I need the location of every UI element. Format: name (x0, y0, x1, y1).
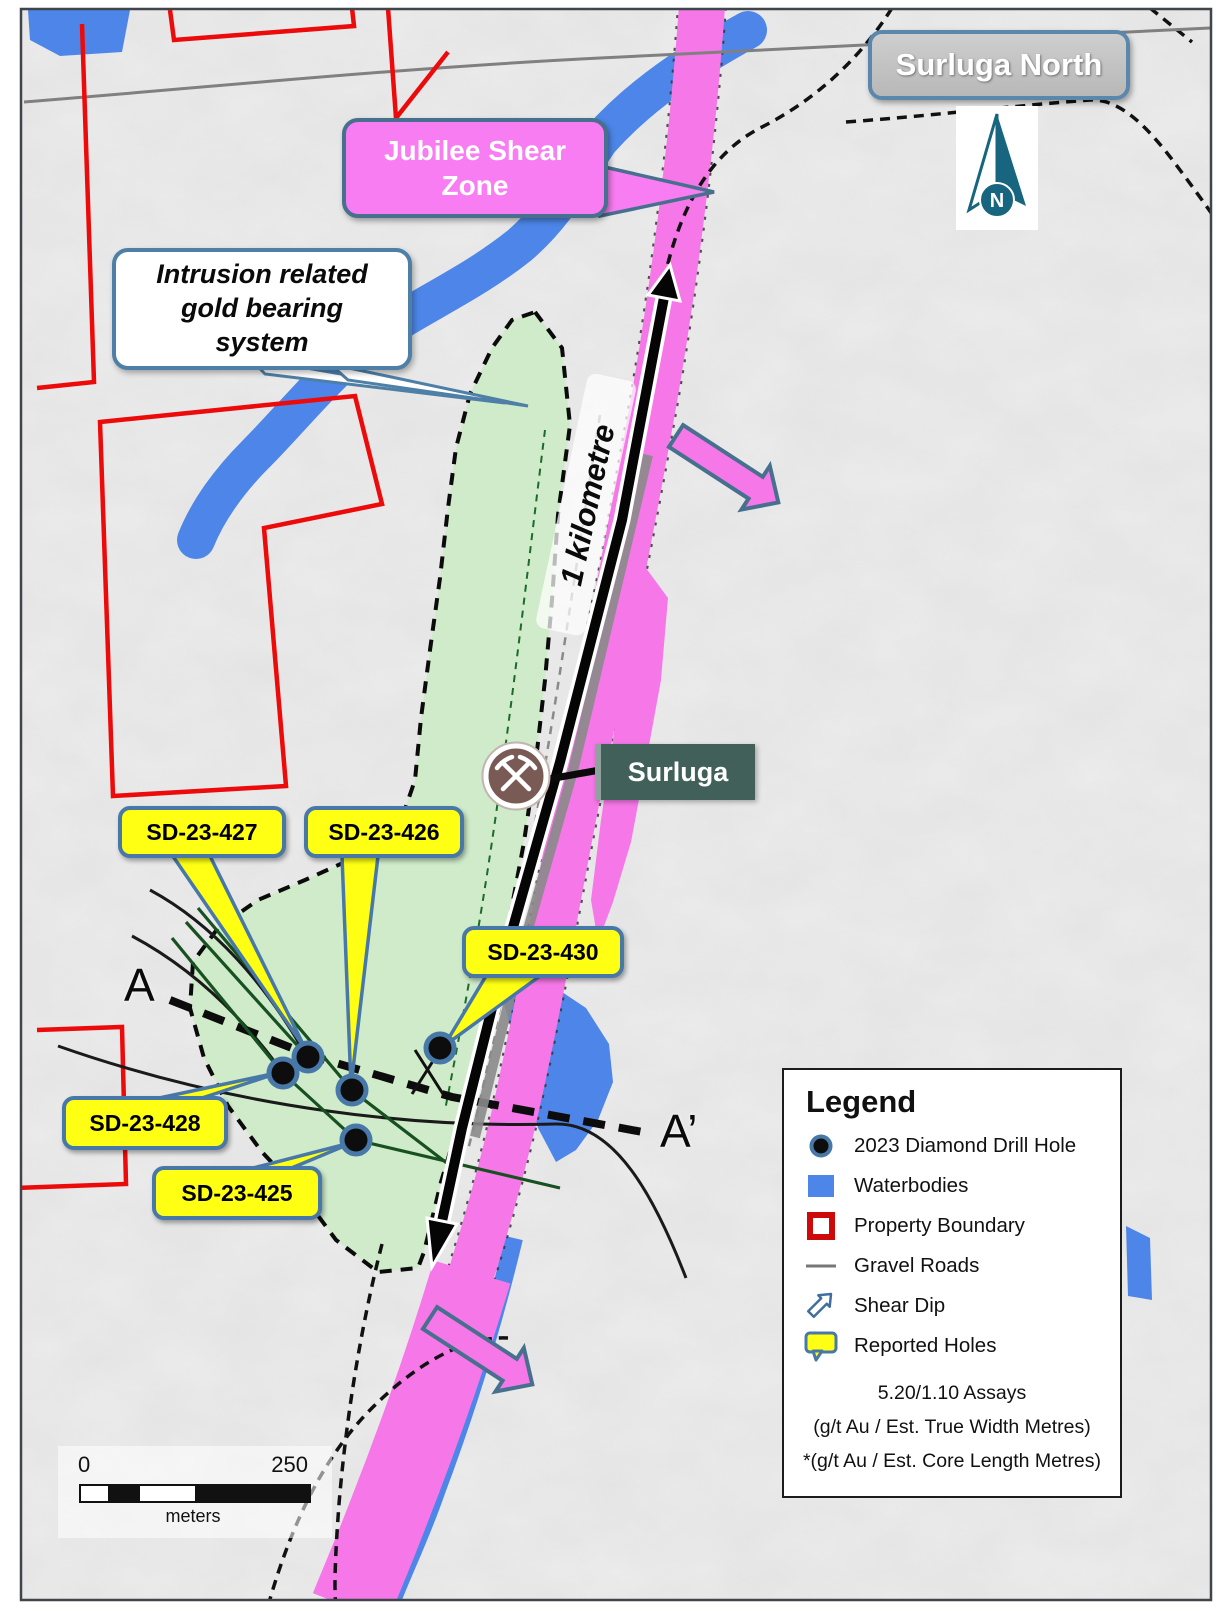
legend-title: Legend (806, 1084, 1102, 1120)
intrusion-callout: Intrusion related gold bearing system (112, 248, 412, 370)
jubilee-shear-zone-callout: Jubilee Shear Zone (342, 118, 608, 218)
scale-bar-segments (79, 1484, 311, 1503)
scale-max: 250 (271, 1452, 308, 1478)
assay-note-line1: 5.20/1.10 Assays (802, 1376, 1102, 1410)
drill-callout-sd-23-430: SD-23-430 (462, 926, 624, 978)
waterbody-icon (802, 1170, 840, 1202)
drill-callout-sd-23-425: SD-23-425 (152, 1166, 322, 1220)
scale-unit: meters (78, 1506, 308, 1527)
waterbody-edge (1126, 1226, 1152, 1300)
reported-holes-icon (802, 1330, 840, 1362)
legend-label: 2023 Diamond Drill Hole (854, 1134, 1076, 1158)
intrusion-line1: Intrusion related (156, 258, 368, 292)
drill-callout-sd-23-428: SD-23-428 (62, 1096, 228, 1150)
assay-note-line3: *(g/t Au / Est. Core Length Metres) (802, 1444, 1102, 1478)
legend-label: Waterbodies (854, 1174, 968, 1198)
legend-item-drill-hole: 2023 Diamond Drill Hole (802, 1130, 1102, 1162)
legend-label: Gravel Roads (854, 1254, 979, 1278)
drill-callout-label: SD-23-425 (181, 1180, 292, 1207)
north-letter: N (990, 190, 1004, 212)
drill-hole-collar (426, 1034, 454, 1062)
drill-callout-sd-23-427: SD-23-427 (118, 806, 286, 858)
intrusion-line3: system (215, 326, 308, 360)
legend: Legend 2023 Diamond Drill Hole Waterbodi… (782, 1068, 1122, 1498)
legend-item-shear-dip: Shear Dip (802, 1290, 1102, 1322)
section-label-a: A (124, 958, 155, 1012)
legend-item-property-boundary: Property Boundary (802, 1210, 1102, 1242)
drill-callout-label: SD-23-428 (89, 1110, 200, 1137)
property-boundary-icon (802, 1210, 840, 1242)
mine-label-text: Surluga (628, 757, 729, 788)
legend-label: Shear Dip (854, 1294, 945, 1318)
north-arrow: N (956, 106, 1038, 230)
legend-item-waterbodies: Waterbodies (802, 1170, 1102, 1202)
jubilee-line2: Zone (442, 168, 509, 203)
legend-label: Property Boundary (854, 1214, 1025, 1238)
scale-bar: 0 250 meters (58, 1446, 332, 1538)
assay-note: 5.20/1.10 Assays (g/t Au / Est. True Wid… (802, 1376, 1102, 1478)
scale-min: 0 (78, 1452, 90, 1478)
drill-callout-label: SD-23-430 (487, 939, 598, 966)
assay-note-line2: (g/t Au / Est. True Width Metres) (802, 1410, 1102, 1444)
mine-icon (483, 743, 549, 809)
legend-item-gravel-roads: Gravel Roads (802, 1250, 1102, 1282)
gravel-road-icon (802, 1250, 840, 1282)
section-label-a-prime: A’ (660, 1104, 698, 1158)
map-figure: 1 kilometre (0, 0, 1232, 1612)
drill-callout-label: SD-23-427 (146, 819, 257, 846)
drill-hole-collar (269, 1059, 297, 1087)
drill-hole-icon (802, 1130, 840, 1162)
intrusion-line2: gold bearing (181, 292, 343, 326)
drill-hole-collar (338, 1076, 366, 1104)
jubilee-line1: Jubilee Shear (384, 133, 566, 168)
legend-item-reported-holes: Reported Holes (802, 1330, 1102, 1362)
drill-callout-label: SD-23-426 (328, 819, 439, 846)
mine-label: Surluga (595, 744, 755, 800)
drill-hole-collar (342, 1126, 370, 1154)
shear-dip-icon (802, 1290, 840, 1322)
map-title: Surluga North (868, 30, 1130, 100)
drill-callout-sd-23-426: SD-23-426 (304, 806, 464, 858)
north-arrow-icon: N (956, 106, 1038, 230)
legend-label: Reported Holes (854, 1334, 996, 1358)
map-title-text: Surluga North (896, 47, 1103, 83)
